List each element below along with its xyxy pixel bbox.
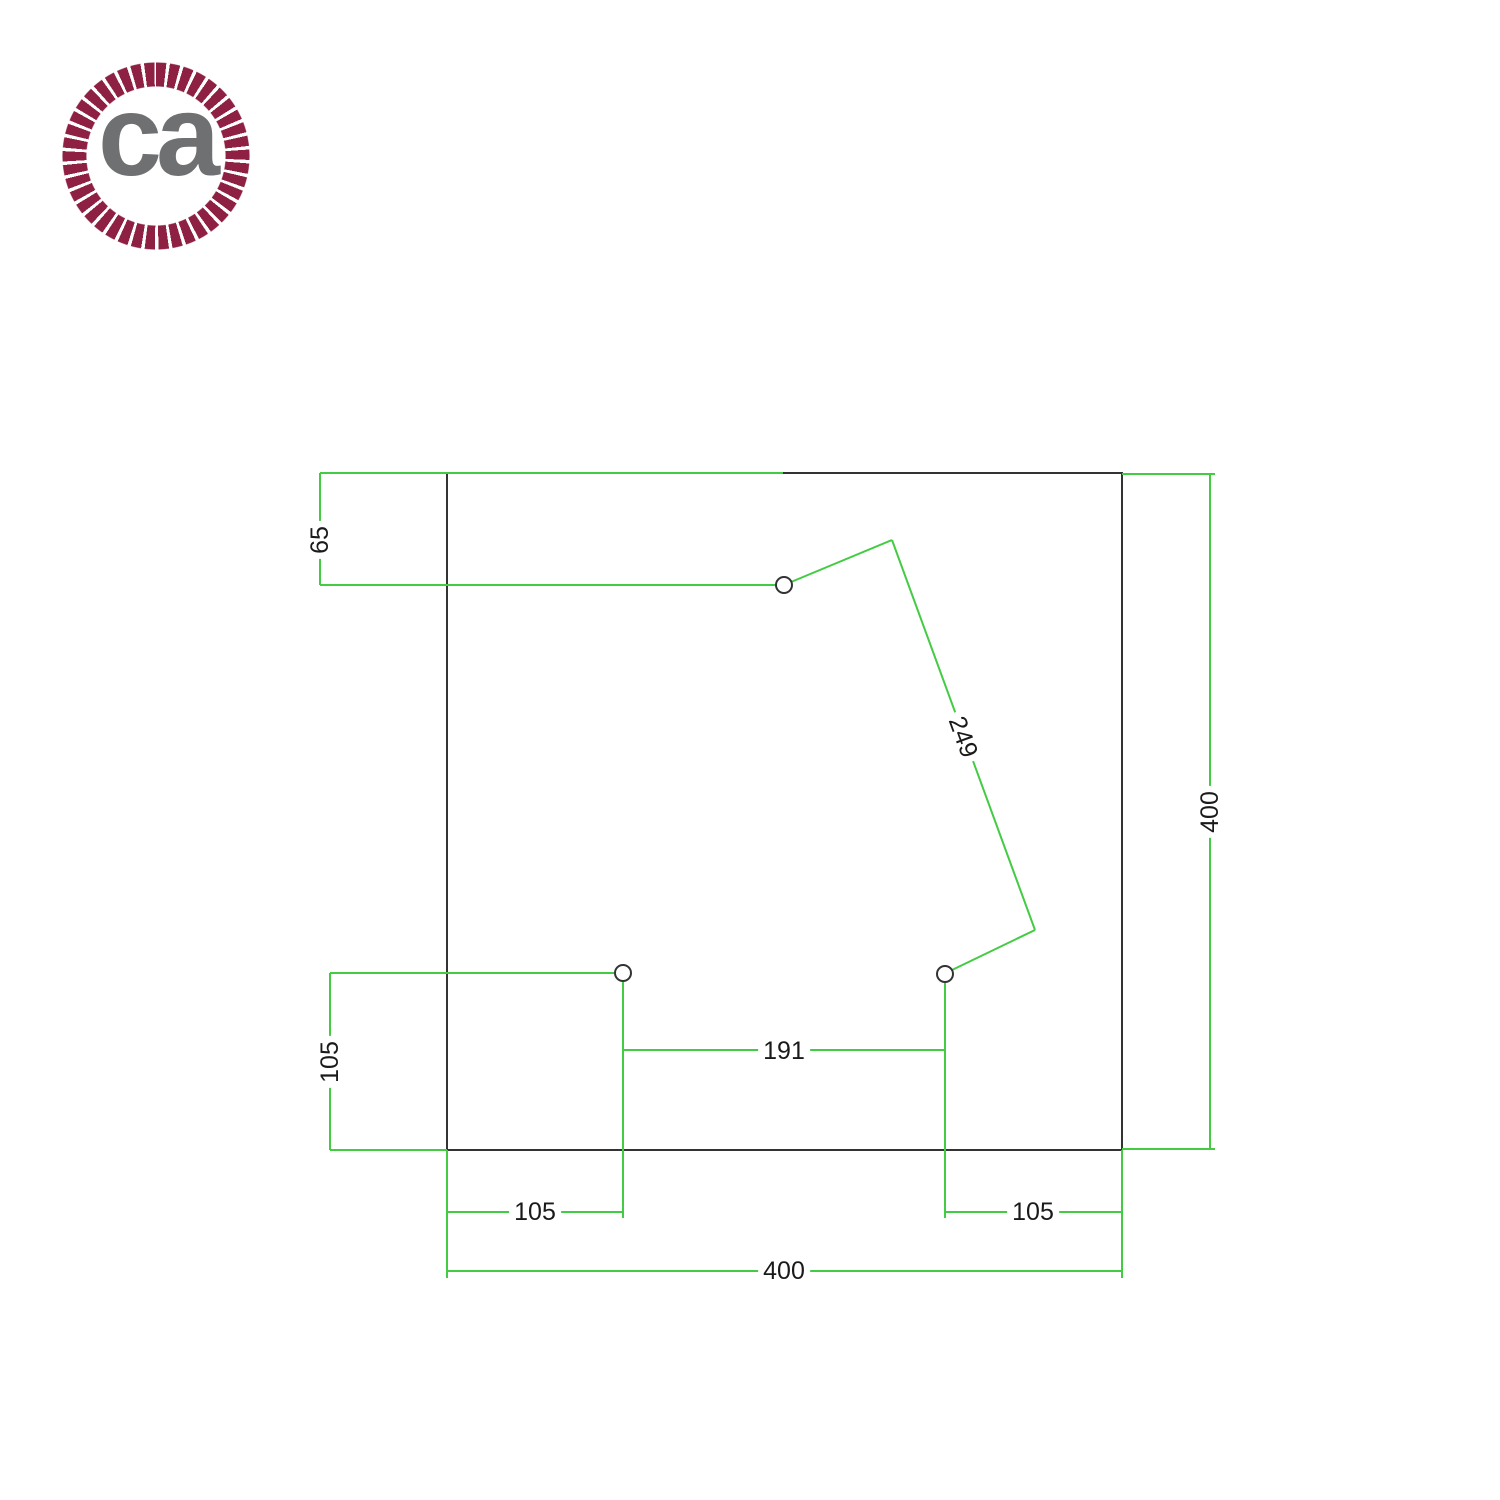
hole-bottom-right — [937, 966, 953, 982]
product-dimension-sheet: ca 65 — [0, 0, 1500, 1500]
dim-label-105-left: 105 — [316, 1036, 344, 1088]
dim-label-65: 65 — [306, 521, 334, 559]
dim-label-400-bottom: 400 — [758, 1257, 810, 1285]
extension-hole3-diagonal — [952, 930, 1035, 970]
dim-label-105-bottom-right: 105 — [1007, 1198, 1059, 1226]
hole-bottom-left — [615, 965, 631, 981]
hole-top-center — [776, 577, 792, 593]
dim-label-105-bottom-left: 105 — [509, 1198, 561, 1226]
extension-hole1-diagonal — [791, 540, 892, 582]
dim-label-191: 191 — [758, 1037, 810, 1065]
technical-drawing — [0, 0, 1500, 1500]
dim-label-400-right: 400 — [1196, 786, 1224, 838]
